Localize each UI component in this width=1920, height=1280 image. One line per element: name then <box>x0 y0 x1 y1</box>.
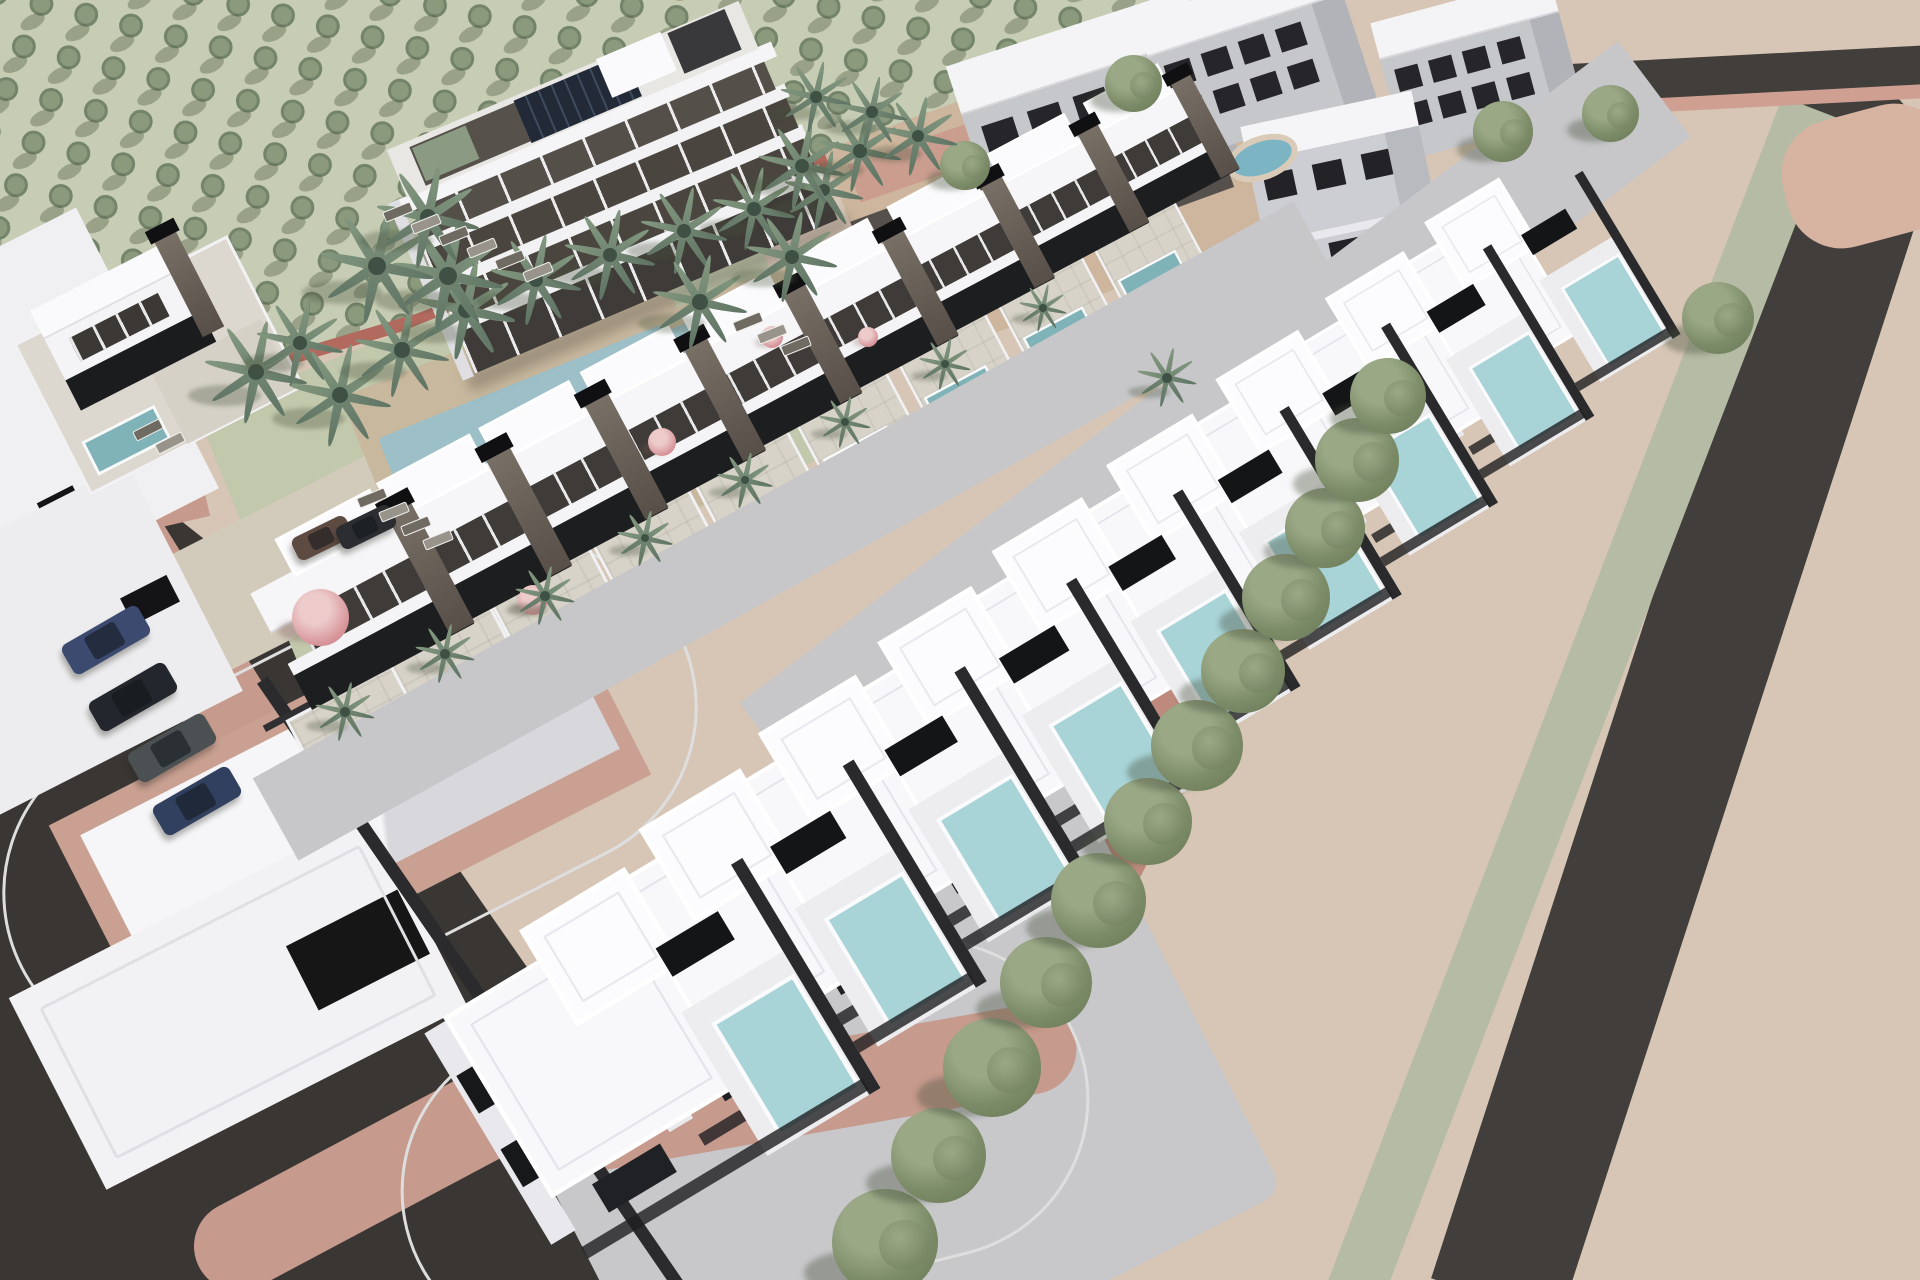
tree-crown-blob <box>879 1220 929 1270</box>
tree-crown-blob <box>1093 881 1138 926</box>
tree-crown-blob <box>1239 653 1279 693</box>
palm-core <box>340 707 350 717</box>
stair-bulkhead <box>1218 450 1283 504</box>
tree-crown-blob <box>1130 72 1157 99</box>
street-tree <box>1471 101 1535 165</box>
stair-bulkhead <box>656 911 735 977</box>
palm-tree <box>315 682 375 742</box>
tree-crown-blob <box>1500 119 1529 148</box>
palm-core <box>540 591 550 601</box>
palm-tree <box>515 566 575 626</box>
palm-core <box>1039 304 1047 312</box>
palm-core <box>440 649 450 659</box>
palm-core <box>394 342 409 357</box>
flowering-tree <box>857 326 879 348</box>
tree-crown-blob <box>1281 579 1322 620</box>
tree-crown-blob <box>1041 963 1084 1006</box>
palm-tree <box>746 211 838 303</box>
stair-bulkhead <box>1108 535 1176 591</box>
tree-crown-blob <box>1384 380 1420 416</box>
palm-tree <box>256 299 344 387</box>
stair-bulkhead <box>1427 284 1486 333</box>
palm-tree <box>819 396 871 448</box>
stair-bulkhead <box>884 715 957 776</box>
stair-bulkhead <box>770 811 846 874</box>
tree-crown-blob <box>933 1136 978 1181</box>
flower-crown <box>648 428 677 457</box>
palm-tree <box>652 254 748 350</box>
tree-crown-blob <box>1321 511 1359 549</box>
tree-crown-blob <box>987 1047 1034 1094</box>
tree-crown-blob <box>1607 102 1634 129</box>
tree-crown-blob <box>1353 442 1393 482</box>
flower-crown <box>292 589 349 646</box>
palm-tree <box>836 76 908 148</box>
palm-tree <box>415 624 475 684</box>
stair-bulkhead <box>999 625 1070 684</box>
street-tree <box>1580 85 1640 145</box>
tree-crown-blob <box>1192 726 1235 769</box>
street-tree <box>1103 55 1163 115</box>
street-tree <box>1348 358 1428 438</box>
tree-crown-blob <box>1143 803 1184 844</box>
flowering-tree <box>647 427 677 457</box>
street-tree <box>940 1018 1044 1122</box>
palm-core <box>866 106 878 118</box>
palm-tree <box>717 452 773 508</box>
flower-crown <box>858 327 879 348</box>
palm-core <box>692 294 707 309</box>
palm-core <box>810 91 822 103</box>
flowering-tree <box>290 587 350 647</box>
palm-tree <box>617 510 673 566</box>
stair-bulkhead <box>1521 209 1577 256</box>
palm-core <box>1162 373 1172 383</box>
palm-tree <box>919 338 971 390</box>
tree-crown-blob <box>962 155 985 178</box>
palm-core <box>439 267 457 285</box>
palm-core <box>293 336 307 350</box>
aerial-render-3d <box>0 0 1920 1280</box>
street-tree <box>1680 282 1756 358</box>
palm-tree <box>1137 348 1197 408</box>
palm-core <box>677 224 691 238</box>
palm-tree <box>1019 284 1067 332</box>
street-tree <box>888 1108 988 1208</box>
